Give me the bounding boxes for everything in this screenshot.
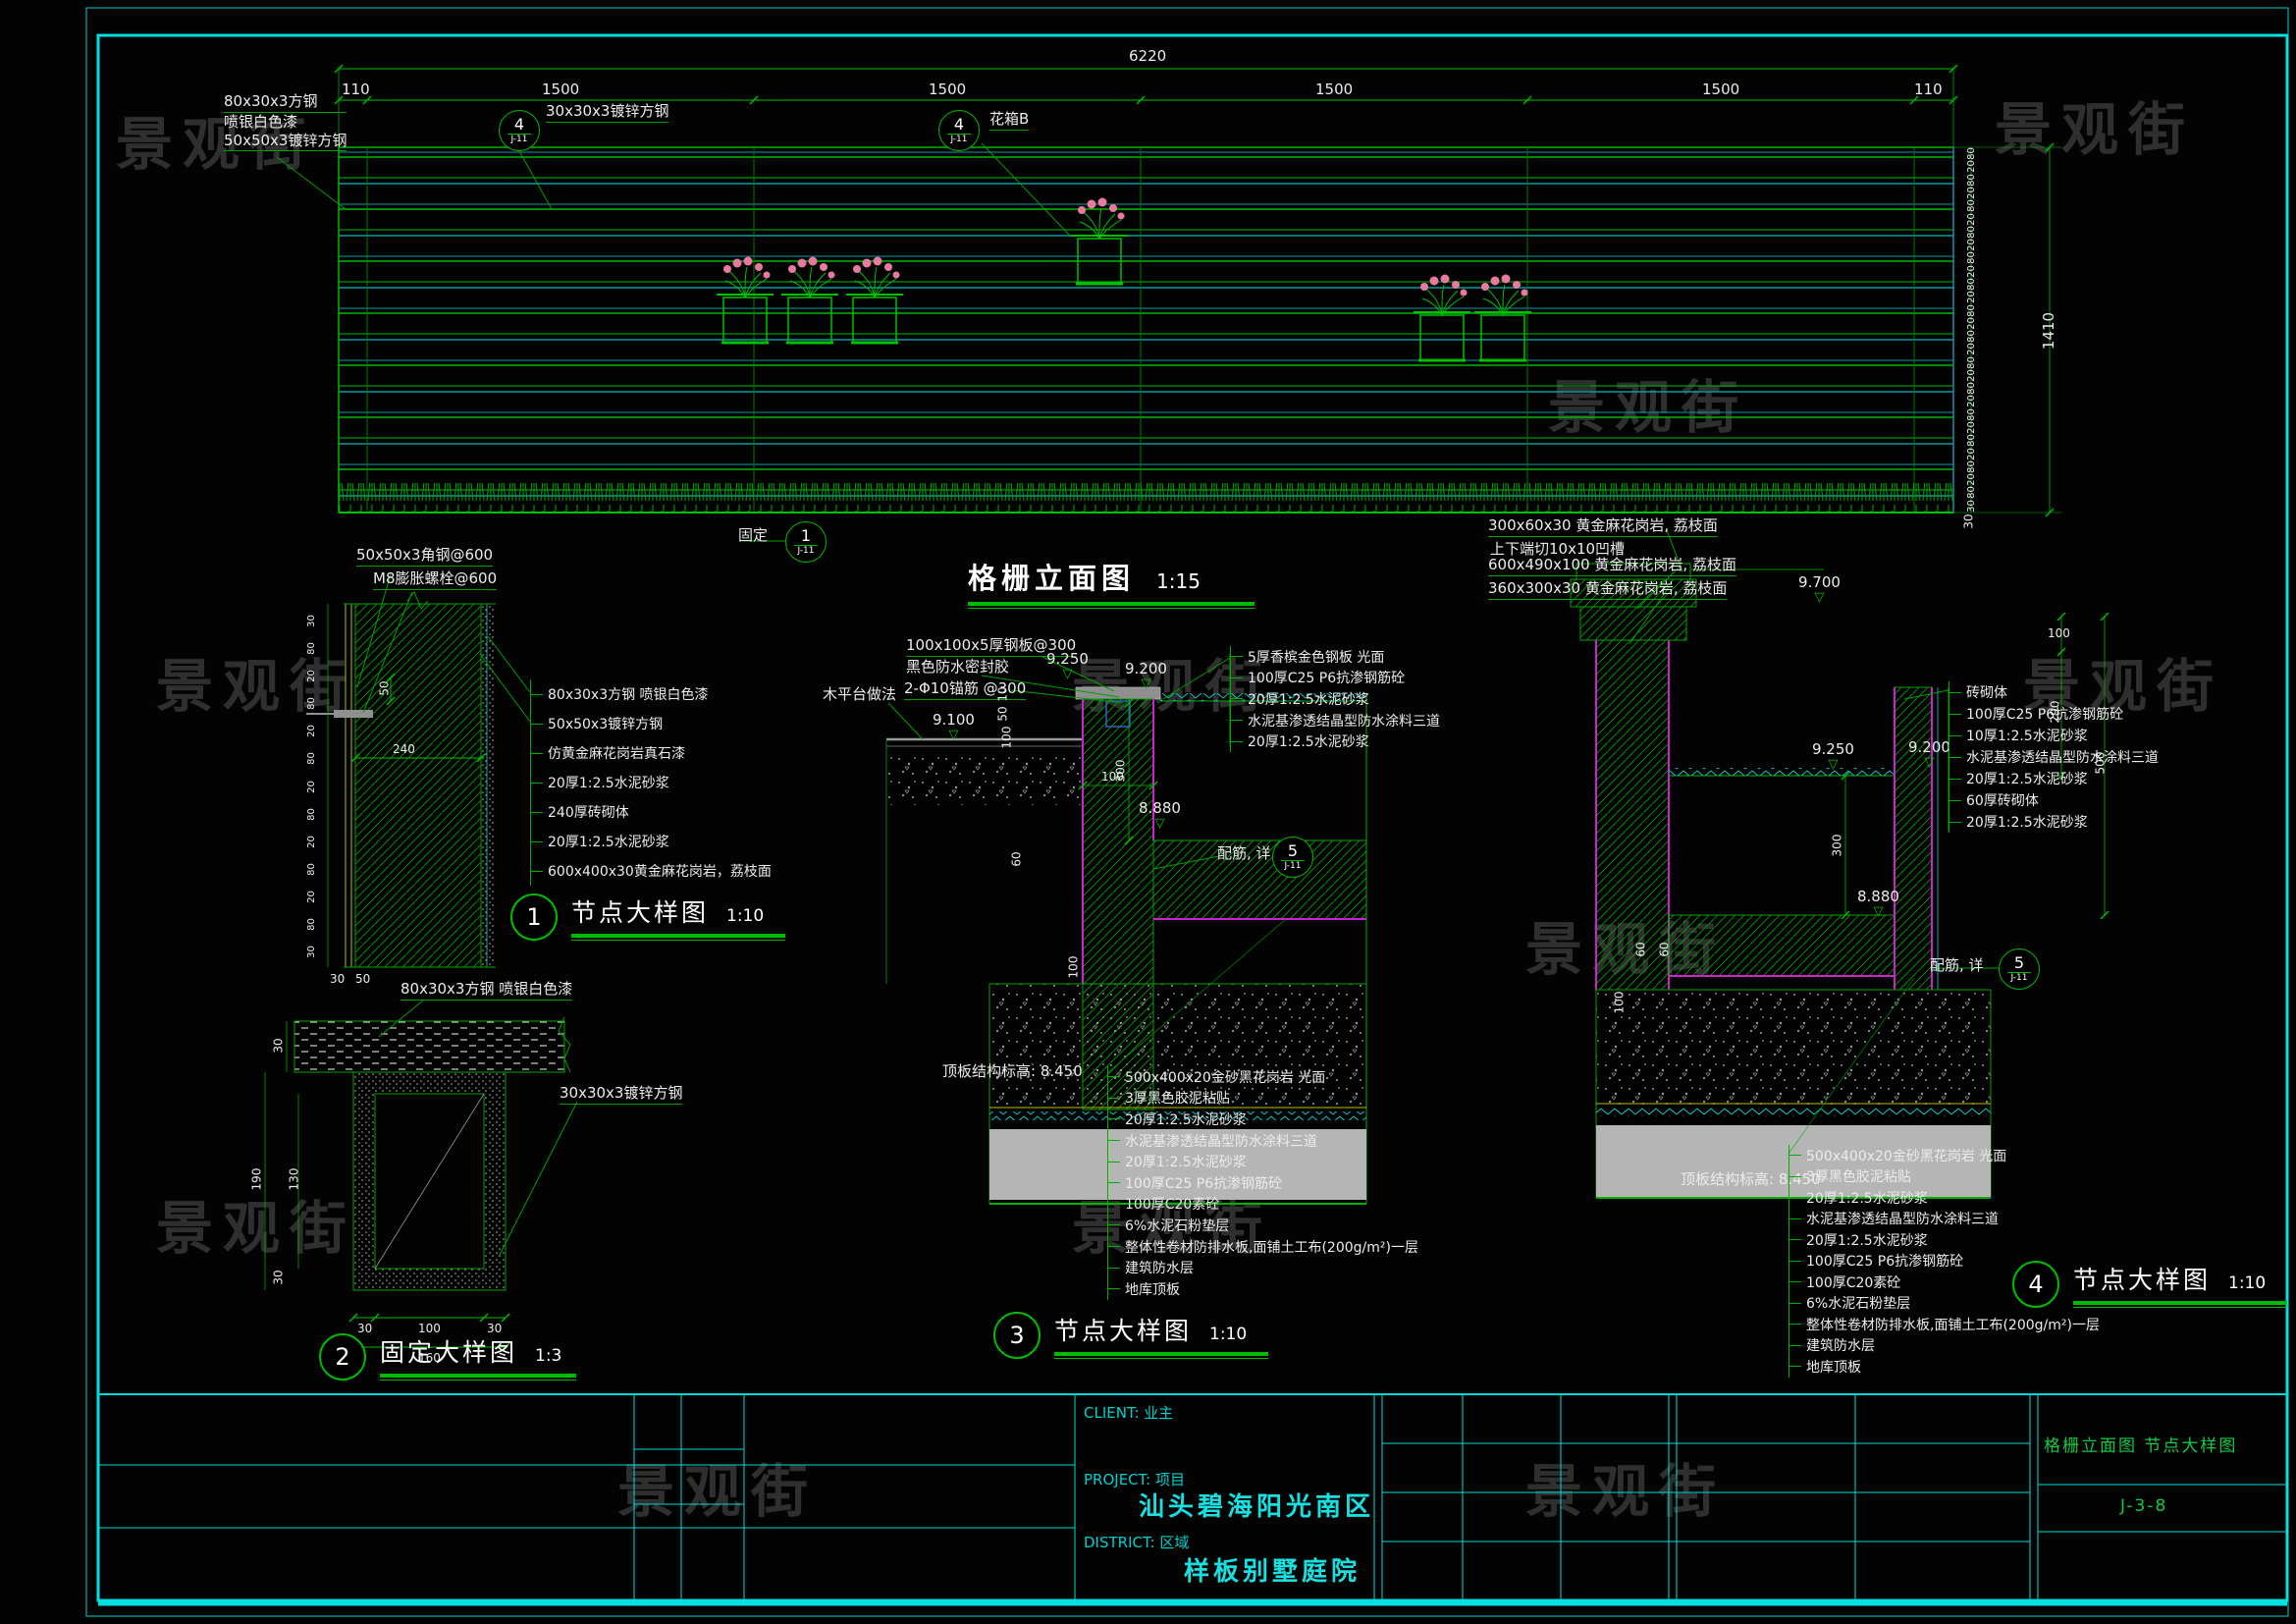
fix-label: 固定 bbox=[738, 526, 768, 545]
callout-sheet: J-11 bbox=[950, 135, 967, 144]
callout-number: 1 bbox=[794, 528, 818, 546]
detail2-label-tube: 30x30x3镀锌方钢 bbox=[560, 1084, 682, 1105]
dim-value: 20 bbox=[300, 884, 322, 911]
callout-sheet: J-11 bbox=[510, 135, 527, 144]
dim-240: 240 bbox=[393, 742, 415, 756]
dim-value: 80 bbox=[1959, 278, 1983, 291]
layer-item: 6%水泥石粉垫层 bbox=[1108, 1215, 1418, 1236]
layer-item: 3厚黑色胶泥粘贴 bbox=[1108, 1088, 1418, 1110]
layer-item: 砖砌体 bbox=[1949, 681, 2159, 703]
callout-label: 花箱B bbox=[989, 110, 1029, 131]
callout-number: 4 bbox=[507, 117, 531, 135]
layer-item: 100厚C20素砼 bbox=[1108, 1194, 1418, 1216]
layer-item: 20厚1:2.5水泥砂浆 bbox=[1108, 1151, 1418, 1172]
dim-value: 20 bbox=[300, 662, 322, 689]
detail-title-text: 节点大样图 bbox=[2073, 1261, 2211, 1296]
watermark: 景观街 bbox=[1548, 361, 1748, 444]
detail4-label: 600x490x100 黄金麻花岗岩, 荔枝面 bbox=[1488, 556, 1736, 576]
dim-value: 30 bbox=[1959, 500, 1983, 513]
callout-sheet: J-11 bbox=[2010, 973, 2027, 983]
detail-scale: 1:10 bbox=[1209, 1325, 1247, 1344]
level-9700: 9.700 bbox=[1798, 575, 1841, 604]
detail3-title: 3 节点大样图 1:10 bbox=[993, 1312, 1268, 1359]
dim-100: 100 bbox=[999, 727, 1013, 749]
dim-bottom: 30 bbox=[1962, 514, 1976, 528]
layer-item: 整体性卷材防排水板,面铺土工布(200g/m²)一层 bbox=[1789, 1314, 2100, 1335]
dim-value: 30 bbox=[300, 939, 322, 966]
fix-callout-bubble: 1 J-11 bbox=[785, 521, 827, 563]
dim-60: 60 bbox=[1010, 851, 1024, 866]
dim-overall: 6220 bbox=[1129, 47, 1166, 65]
layer-item: 水泥基渗透结晶型防水涂料三道 bbox=[1108, 1130, 1418, 1152]
dim-100: 100 bbox=[1066, 956, 1080, 979]
dim-b50: 50 bbox=[355, 972, 370, 986]
layer-item: 600x400x30黄金麻花岗岩，荔枝面 bbox=[531, 856, 772, 886]
watermark: 景观街 bbox=[156, 640, 356, 723]
detail1-layer-list: 80x30x3方钢 喷银白色漆50x50x3镀锌方钢仿黄金麻花岗岩真石漆20厚1… bbox=[530, 679, 772, 886]
rebar-note: 配筋, 详 bbox=[1930, 956, 1984, 975]
layer-item: 整体性卷材防排水板,面铺土工布(200g/m²)一层 bbox=[1108, 1236, 1418, 1258]
dim-value: 20 bbox=[1959, 447, 1983, 460]
dim-value: 20 bbox=[1959, 160, 1983, 173]
detail3-wall-layers: 5厚香槟金色钢板 光面100厚C25 P6抗渗钢筋砼20厚1:2.5水泥砂浆水泥… bbox=[1230, 646, 1440, 752]
cad-drawing-sheet: 景观街 景观街 景观街 景观街 景观街 景观街 景观街 景观街 景观街 景观街 … bbox=[0, 0, 2296, 1624]
dim-value: 20 bbox=[1959, 291, 1983, 303]
layer-item: 20厚1:2.5水泥砂浆 bbox=[1231, 688, 1440, 710]
dim-value: 80 bbox=[1959, 147, 1983, 160]
dim-segment: 1500 bbox=[1315, 81, 1353, 98]
watermark: 景观街 bbox=[1525, 903, 1726, 986]
dim-300: 300 bbox=[1113, 760, 1127, 783]
dim-value: 20 bbox=[1959, 343, 1983, 355]
dim-value: 20 bbox=[1959, 187, 1983, 199]
dim-value: 30 bbox=[300, 607, 322, 634]
layer-item: 10厚1:2.5水泥砂浆 bbox=[1949, 725, 2159, 746]
layer-item: 5厚香槟金色钢板 光面 bbox=[1231, 646, 1440, 668]
layer-item: 20厚1:2.5水泥砂浆 bbox=[1789, 1229, 2100, 1251]
detail-title-text: 固定大样图 bbox=[380, 1333, 517, 1369]
dim-bar: 30 bbox=[272, 1038, 286, 1053]
detail4-wall-layers: 砖砌体100厚C25 P6抗渗钢筋砼10厚1:2.5水泥砂浆水泥基渗透结晶型防水… bbox=[1949, 681, 2159, 833]
district-name: 样板别墅庭院 bbox=[1184, 1551, 1361, 1588]
dim-value: 80 bbox=[1959, 486, 1983, 499]
district-label: DISTRICT: 区域 bbox=[1084, 1532, 1189, 1552]
dim-value: 80 bbox=[300, 634, 322, 662]
dim-100: 100 bbox=[2048, 626, 2070, 640]
dim-value: 80 bbox=[1959, 356, 1983, 369]
watermark: 景观街 bbox=[1525, 1445, 1726, 1528]
layer-item: 500x400x20金砂黑花岗岩 光面 bbox=[1789, 1145, 2100, 1166]
material-label-block: 80x30x3方钢 喷银白色漆 50x50x3镀锌方钢 bbox=[224, 92, 347, 151]
layer-item: 80x30x3方钢 喷银白色漆 bbox=[531, 679, 772, 709]
drawing-title: 格栅立面图 bbox=[968, 556, 1135, 597]
detail-callout-bubble: 4 J-11 bbox=[499, 110, 540, 151]
layer-item: 20厚1:2.5水泥砂浆 bbox=[531, 827, 772, 856]
callout-number: 5 bbox=[2007, 955, 2031, 973]
dim-value: 80 bbox=[1959, 460, 1983, 473]
level-9100: 9.100 bbox=[933, 713, 975, 741]
detail-number: 2 bbox=[319, 1333, 366, 1380]
dim-100: 100 bbox=[1612, 992, 1626, 1014]
layer-item: 地库顶板 bbox=[1108, 1278, 1418, 1300]
layer-item: 仿黄金麻花岗岩真石漆 bbox=[531, 738, 772, 768]
dim-value: 20 bbox=[1959, 421, 1983, 434]
dim-value: 80 bbox=[1959, 408, 1983, 421]
detail4-label: 360x300x30 黄金麻花岗岩, 荔枝面 bbox=[1488, 579, 1727, 600]
dim-value: 80 bbox=[300, 911, 322, 939]
detail2-label-top: 80x30x3方钢 喷银白色漆 bbox=[400, 980, 572, 1001]
layer-item: 100厚C25 P6抗渗钢筋砼 bbox=[1949, 703, 2159, 725]
detail3-floor-layers: 500x400x20金砂黑花岗岩 光面3厚黑色胶泥粘贴20厚1:2.5水泥砂浆水… bbox=[1107, 1066, 1418, 1300]
watermark: 景观街 bbox=[156, 1182, 356, 1265]
dim-value: 20 bbox=[1959, 369, 1983, 382]
layer-item: 地库顶板 bbox=[1789, 1356, 2100, 1378]
dim-total-height: 1410 bbox=[2040, 312, 2057, 350]
dim-value: 20 bbox=[1959, 239, 1983, 251]
level-9250: 9.250 bbox=[1046, 652, 1089, 680]
detail1-label: M8膨胀螺栓@600 bbox=[373, 569, 497, 590]
dim-value: 20 bbox=[300, 828, 322, 855]
dim-300: 300 bbox=[1830, 835, 1843, 857]
layer-item: 20厚1:2.5水泥砂浆 bbox=[1108, 1109, 1418, 1130]
callout-number: 5 bbox=[1281, 843, 1305, 861]
layer-item: 100厚C25 P6抗渗钢筋砼 bbox=[1108, 1172, 1418, 1194]
layer-item: 100厚C25 P6抗渗钢筋砼 bbox=[1231, 668, 1440, 689]
dim-value: 80 bbox=[1959, 434, 1983, 447]
dim-value: 20 bbox=[300, 773, 322, 800]
dim-value: 80 bbox=[1959, 303, 1983, 316]
detail-title-text: 节点大样图 bbox=[571, 893, 709, 929]
dim-60: 60 bbox=[1658, 942, 1672, 956]
layer-item: 建筑防水层 bbox=[1108, 1257, 1418, 1278]
dim-value: 80 bbox=[300, 745, 322, 773]
detail-title-text: 节点大样图 bbox=[1054, 1312, 1192, 1347]
dim-value: 20 bbox=[1959, 473, 1983, 486]
right-dim-chain: 8020802080208020802080208020802080208020… bbox=[1959, 147, 1983, 513]
level-9200: 9.200 bbox=[1908, 740, 1950, 769]
detail2-title: 2 固定大样图 1:3 bbox=[319, 1333, 576, 1380]
layer-item: 20厚1:2.5水泥砂浆 bbox=[1949, 768, 2159, 789]
layer-item: 水泥基渗透结晶型防水涂料三道 bbox=[1789, 1209, 2100, 1230]
dim-value: 20 bbox=[1959, 212, 1983, 225]
dim-segment: 1500 bbox=[1702, 81, 1739, 98]
drawing-scale: 1:15 bbox=[1156, 569, 1201, 593]
detail4-label: 300x60x30 黄金麻花岗岩, 荔枝面 bbox=[1488, 516, 1718, 537]
layer-item: 60厚砖砌体 bbox=[1949, 789, 2159, 811]
detail1-label: 50x50x3角钢@600 bbox=[356, 546, 493, 567]
material-label: 80x30x3方钢 bbox=[224, 92, 347, 113]
level-9250: 9.250 bbox=[1812, 742, 1854, 771]
dim-segment: 1500 bbox=[542, 81, 579, 98]
rebar-ref-bubble: 5 J-11 bbox=[1272, 837, 1313, 878]
callout-sheet: J-11 bbox=[1284, 861, 1301, 871]
material-label: 喷银白色漆 bbox=[224, 113, 347, 132]
detail-scale: 1:3 bbox=[535, 1346, 561, 1366]
dim-value: 80 bbox=[300, 689, 322, 717]
level-9200: 9.200 bbox=[1125, 662, 1167, 690]
rebar-note: 配筋, 详 bbox=[1217, 844, 1271, 863]
dim-value: 80 bbox=[1959, 251, 1983, 264]
callout-label: 30x30x3镀锌方钢 bbox=[546, 102, 668, 123]
detail1-title: 1 节点大样图 1:10 bbox=[510, 893, 785, 941]
client-label: CLIENT: 业主 bbox=[1084, 1402, 1173, 1423]
elevation-title: 格栅立面图 1:15 bbox=[968, 556, 1255, 609]
title-underline bbox=[968, 602, 1255, 606]
layer-item: 20厚1:2.5水泥砂浆 bbox=[1789, 1187, 2100, 1209]
deck-label: 木平台做法 bbox=[823, 685, 896, 704]
callout-sheet: J-11 bbox=[797, 546, 814, 556]
detail-number: 4 bbox=[2012, 1261, 2059, 1308]
layer-item: 240厚砖砌体 bbox=[531, 797, 772, 827]
dim-value: 80 bbox=[300, 855, 322, 883]
dim-h: 190 bbox=[249, 1168, 263, 1191]
layer-item: 20厚1:2.5水泥砂浆 bbox=[1231, 731, 1440, 752]
dim-wall: 30 bbox=[272, 1270, 286, 1284]
dim-60: 60 bbox=[1634, 942, 1648, 956]
detail-number: 3 bbox=[993, 1312, 1041, 1359]
detail3-label: 黑色防水密封胶 bbox=[906, 658, 1009, 677]
dim-b30: 30 bbox=[330, 972, 345, 986]
dim-10: 10 bbox=[996, 686, 1010, 701]
layer-item: 20厚1:2.5水泥砂浆 bbox=[531, 768, 772, 797]
watermark: 景观街 bbox=[1995, 83, 2195, 166]
dim-inner: 130 bbox=[287, 1168, 300, 1191]
dim-segment: 110 bbox=[1914, 81, 1943, 98]
detail-scale: 1:10 bbox=[726, 906, 764, 926]
dim-segment: 1500 bbox=[929, 81, 966, 98]
watermark: 景观街 bbox=[617, 1445, 818, 1528]
layer-item: 建筑防水层 bbox=[1789, 1335, 2100, 1357]
slab-note: 顶板结构标高: 8.450 bbox=[942, 1062, 1083, 1081]
detail4-title: 4 节点大样图 1:10 bbox=[2012, 1261, 2287, 1308]
dim-value: 20 bbox=[300, 718, 322, 745]
material-label: 50x50x3镀锌方钢 bbox=[224, 132, 347, 152]
title-underline2 bbox=[968, 608, 1255, 609]
level-8880: 8.880 bbox=[1139, 801, 1181, 830]
dim-value: 80 bbox=[1959, 226, 1983, 239]
callout-number: 4 bbox=[947, 117, 971, 135]
dim-value: 20 bbox=[1959, 317, 1983, 330]
layer-item: 水泥基渗透结晶型防水涂料三道 bbox=[1231, 710, 1440, 731]
layer-item: 500x400x20金砂黑花岗岩 光面 bbox=[1108, 1066, 1418, 1088]
layer-item: 20厚1:2.5水泥砂浆 bbox=[1949, 811, 2159, 833]
detail-scale: 1:10 bbox=[2228, 1273, 2266, 1293]
dim-value: 20 bbox=[1959, 265, 1983, 278]
sheet-title: 格栅立面图 节点大样图 bbox=[2044, 1432, 2237, 1456]
dim-value: 80 bbox=[1959, 382, 1983, 395]
dim-value: 80 bbox=[300, 800, 322, 828]
dim-value: 20 bbox=[1959, 395, 1983, 407]
layer-item: 50x50x3镀锌方钢 bbox=[531, 709, 772, 738]
level-8880: 8.880 bbox=[1857, 890, 1899, 918]
dim-value: 80 bbox=[1959, 199, 1983, 212]
detail-callout-bubble: 4 J-11 bbox=[938, 110, 980, 151]
dim-50: 50 bbox=[378, 680, 392, 695]
dim-value: 80 bbox=[1959, 330, 1983, 343]
detail-number: 1 bbox=[510, 893, 558, 941]
layer-item: 水泥基渗透结晶型防水涂料三道 bbox=[1949, 746, 2159, 768]
layer-item: 3厚黑色胶泥粘贴 bbox=[1789, 1166, 2100, 1188]
project-name: 汕头碧海阳光南区 bbox=[1139, 1487, 1374, 1523]
dim-50: 50 bbox=[996, 706, 1010, 721]
dim-value: 80 bbox=[1959, 174, 1983, 187]
sheet-number: J-3-8 bbox=[2120, 1496, 2167, 1516]
rebar-ref-bubble: 5 J-11 bbox=[1999, 948, 2040, 990]
detail1-left-dims: 30802080208020802080208030 bbox=[300, 607, 322, 966]
